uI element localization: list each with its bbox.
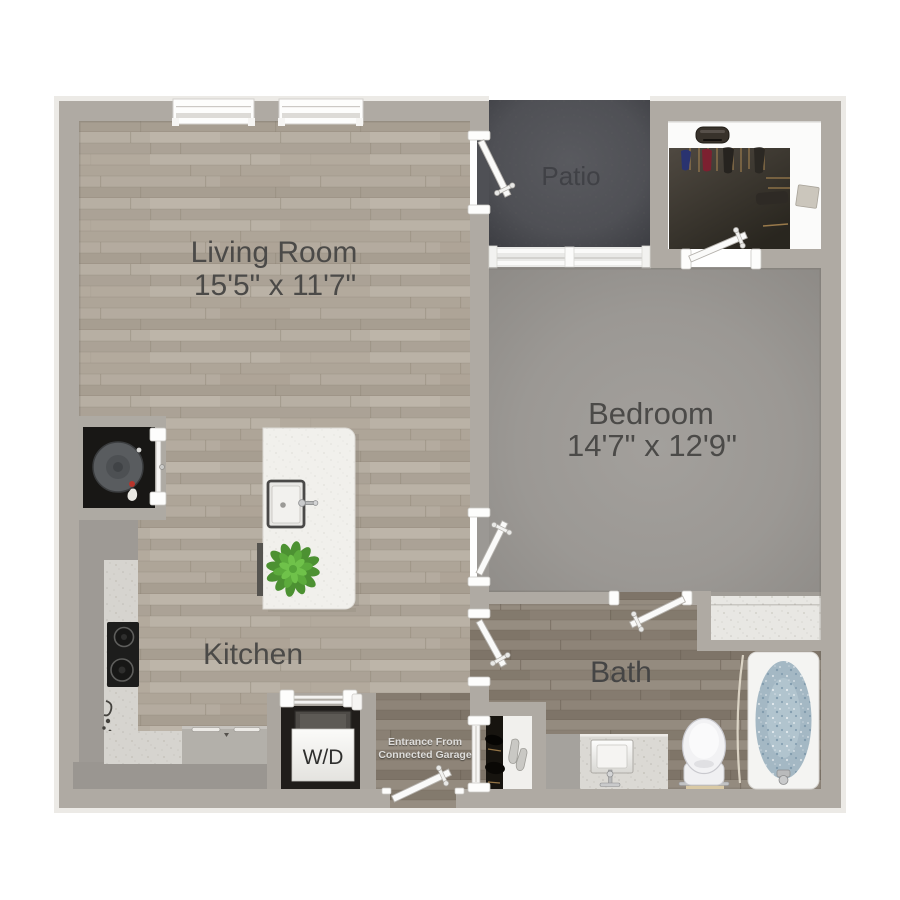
svg-text:Bath: Bath [590, 656, 652, 689]
svg-text:14'7" x 12'9": 14'7" x 12'9" [567, 428, 737, 463]
svg-text:Kitchen: Kitchen [203, 638, 303, 671]
svg-text:15'5" x 11'7": 15'5" x 11'7" [194, 269, 356, 302]
svg-text:Bedroom: Bedroom [588, 396, 714, 431]
svg-text:Patio: Patio [541, 161, 600, 191]
svg-text:W/D: W/D [303, 746, 344, 769]
svg-text:Connected Garage: Connected Garage [378, 749, 472, 761]
svg-text:Living Room: Living Room [191, 236, 358, 269]
svg-text:Entrance From: Entrance From [388, 736, 462, 748]
